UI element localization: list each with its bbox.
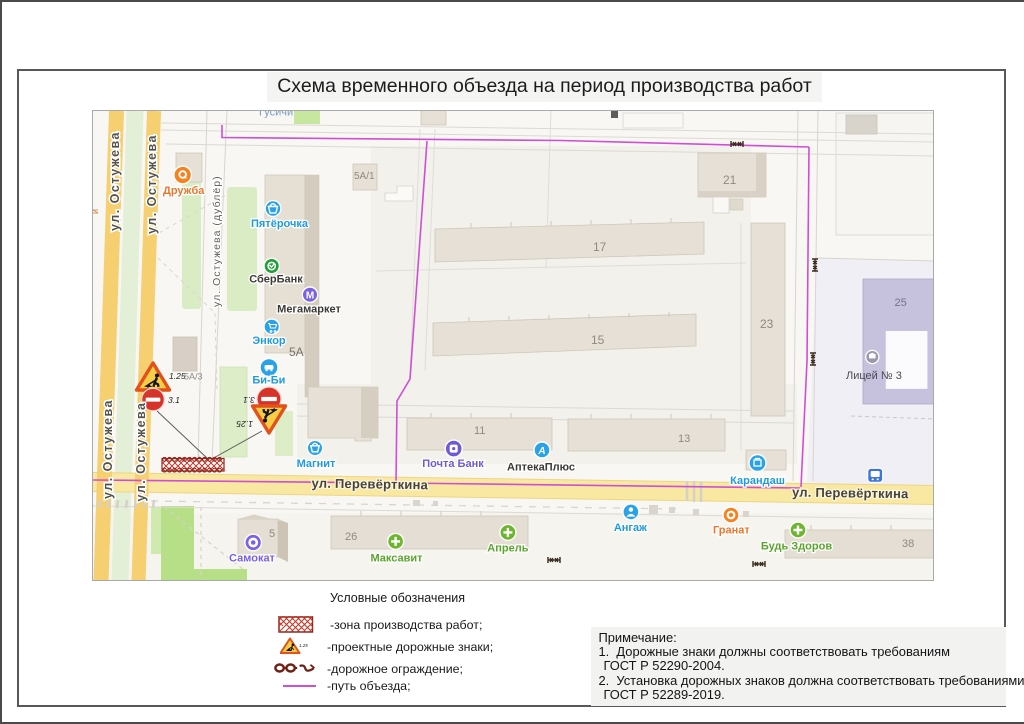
svg-text:Мегамаркет: Мегамаркет	[277, 304, 341, 316]
svg-text:Дружба: Дружба	[163, 185, 205, 197]
svg-text:Лицей № 3: Лицей № 3	[846, 370, 902, 382]
svg-text:15: 15	[591, 333, 605, 347]
svg-text:ул. Остужева: ул. Остужева	[145, 134, 159, 234]
svg-text:АптекаПлюс: АптекаПлюс	[507, 462, 575, 474]
svg-text:СберБанк: СберБанк	[249, 274, 303, 286]
svg-text:Гусичи: Гусичи	[259, 110, 293, 119]
svg-text:3.1: 3.1	[243, 395, 255, 405]
svg-text:ул. Остужева: ул. Остужева	[134, 401, 148, 501]
svg-text:Будь Здоров: Будь Здоров	[761, 541, 832, 553]
svg-text:Максавит: Максавит	[370, 553, 423, 565]
svg-text:Апрель: Апрель	[487, 543, 528, 555]
svg-text:1.25: 1.25	[299, 643, 308, 648]
svg-text:11: 11	[474, 425, 485, 437]
svg-text:21: 21	[723, 173, 737, 187]
svg-text:17: 17	[593, 240, 607, 254]
svg-text:5А/3: 5А/3	[184, 372, 203, 382]
svg-text:Гранат: Гранат	[713, 525, 750, 537]
svg-text:3.1: 3.1	[168, 395, 180, 405]
svg-text:ул. Перевёрткина: ул. Перевёрткина	[311, 475, 428, 492]
svg-text:Почта Банк: Почта Банк	[422, 458, 484, 470]
svg-text:Пятёрочка: Пятёрочка	[251, 218, 309, 230]
svg-text:Би-Би: Би-Би	[252, 375, 285, 387]
svg-text:5А: 5А	[289, 345, 304, 359]
svg-text:ул. Остужева: ул. Остужева	[108, 131, 122, 231]
svg-text:и: и	[92, 209, 100, 214]
svg-text:26: 26	[345, 531, 357, 543]
svg-text:М: М	[306, 291, 314, 302]
svg-text:Энкор: Энкор	[252, 335, 286, 347]
svg-text:5: 5	[269, 528, 275, 540]
svg-text:13: 13	[678, 433, 690, 445]
svg-text:ул. Перевёрткина: ул. Перевёрткина	[792, 484, 909, 501]
svg-text:ул. Остужева (дублёр): ул. Остужева (дублёр)	[211, 175, 223, 307]
svg-text:1.25: 1.25	[236, 419, 253, 429]
svg-text:23: 23	[760, 317, 774, 331]
svg-text:38: 38	[902, 538, 914, 550]
svg-text:Ангаж: Ангаж	[614, 522, 647, 534]
svg-text:ул. Остужева: ул. Остужева	[101, 399, 115, 499]
svg-text:Карандаш: Карандаш	[730, 475, 785, 487]
svg-text:Самокат: Самокат	[229, 553, 276, 565]
svg-text:25: 25	[895, 297, 907, 309]
svg-text:Магнит: Магнит	[297, 458, 336, 470]
svg-text:А: А	[537, 446, 545, 457]
svg-text:5А/1: 5А/1	[354, 171, 375, 182]
